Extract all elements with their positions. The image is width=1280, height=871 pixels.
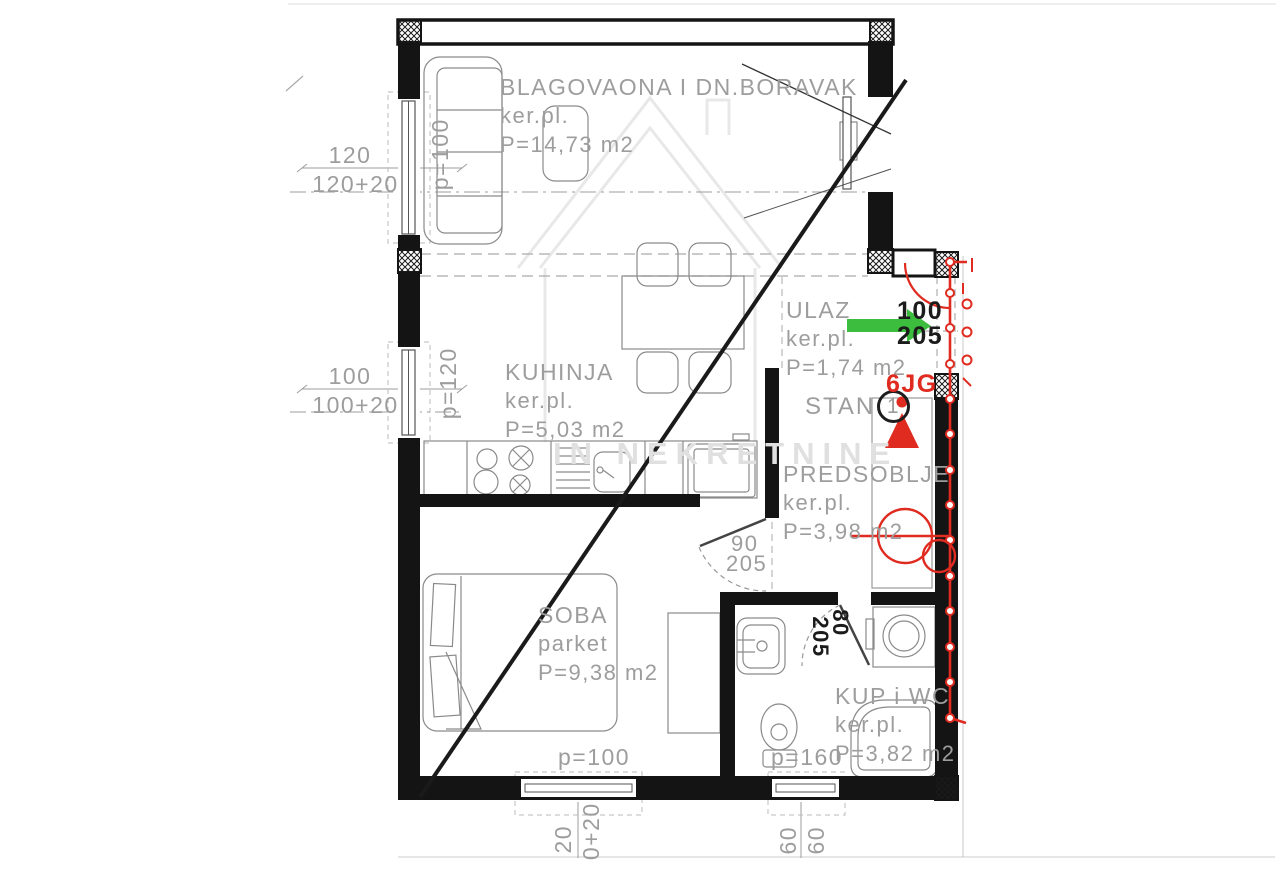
dim-bottom-clip-a: 20 — [550, 814, 576, 864]
sill-left-bottom: p=120 — [435, 333, 461, 433]
dim-left-top-primary: 120 — [320, 142, 380, 168]
room-label-hall: PREDSOBLJE ker.pl. P=3,98 m2 — [783, 461, 950, 547]
floor-plan-page: { "watermark": { "text": "IN NEKRETNINE"… — [0, 0, 1280, 860]
room-label-living: BLAGOVAONA I DN.BORAVAK ker.pl. P=14,73 … — [500, 74, 858, 160]
bathroom-door-height: 205 — [809, 602, 833, 672]
bedroom-closet — [668, 613, 720, 733]
dim-bottom-clip-b: 0+20 — [578, 791, 604, 871]
window-bottom-right — [771, 778, 840, 798]
entry-door-height: 205 — [897, 322, 943, 351]
bathroom-sink — [737, 618, 785, 674]
window-left-top — [398, 99, 420, 235]
bedroom-door-height: 205 — [726, 551, 767, 576]
unit-label: STAN — [805, 393, 875, 421]
room-label-kitchen: KUHINJA ker.pl. P=5,03 m2 — [505, 359, 626, 445]
dim-bottom-right-b: 60 — [803, 815, 829, 865]
room-label-bathroom: KUP i WC ker.pl. P=3,82 m2 — [835, 683, 956, 769]
unit-code: 6JG — [886, 370, 938, 399]
dim-left-top-secondary: 120+20 — [308, 171, 403, 197]
dim-bottom-right-a: 60 — [775, 815, 801, 865]
dining-table-and-chairs — [622, 243, 744, 393]
dim-left-bottom-primary: 100 — [320, 363, 380, 389]
sill-bottom-left: p=100 — [558, 744, 630, 770]
sill-left-top: p=100 — [427, 104, 453, 204]
room-label-bedroom: SOBA parket P=9,38 m2 — [538, 602, 659, 688]
washing-machine — [866, 607, 935, 667]
sill-bottom-right: p=160 — [771, 744, 843, 770]
dim-left-bottom-secondary: 100+20 — [308, 392, 403, 418]
clipped-red-annotation — [963, 258, 973, 386]
